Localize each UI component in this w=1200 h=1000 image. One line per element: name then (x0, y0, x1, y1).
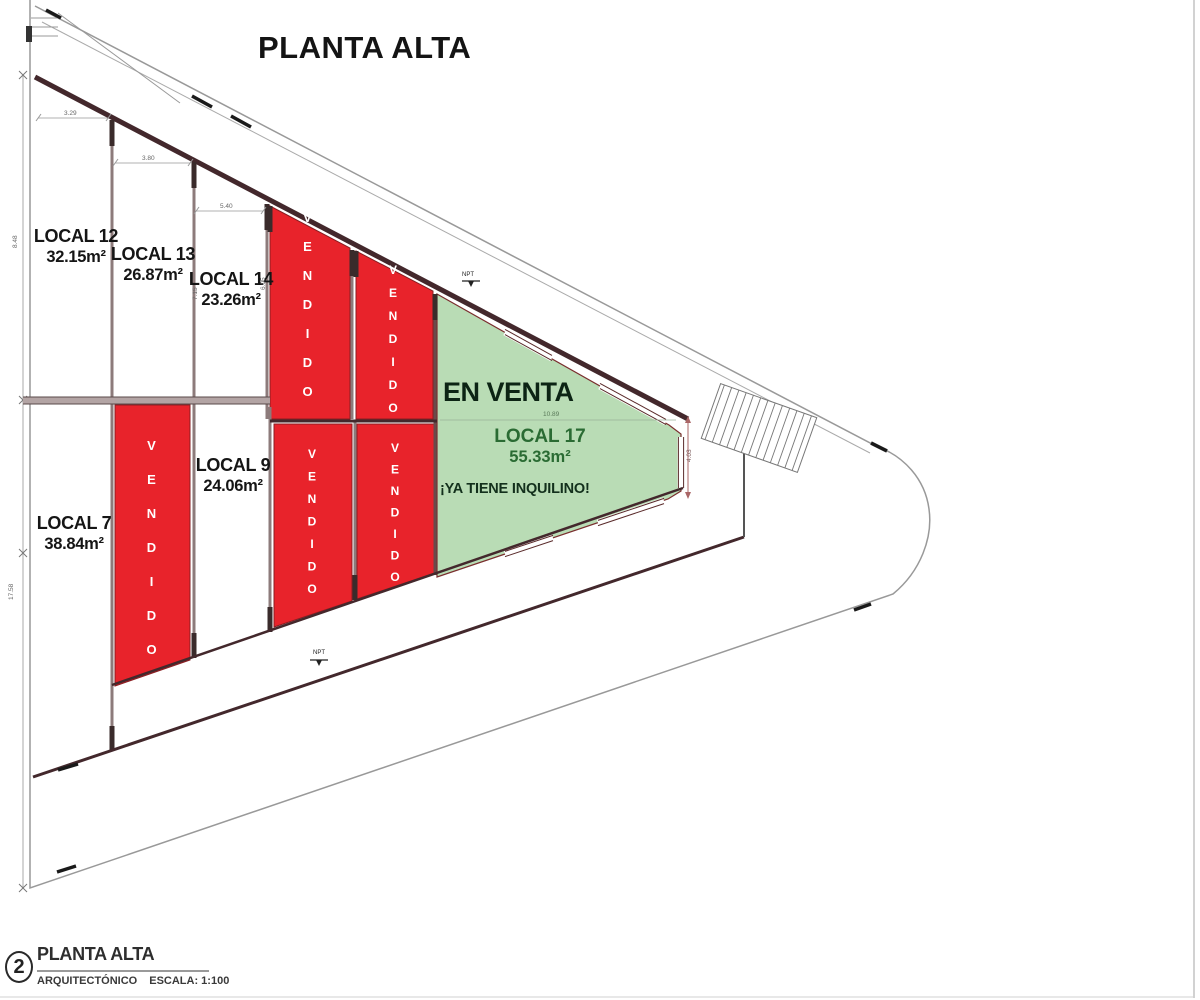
unit-area-local17: 55.33m² (455, 448, 625, 467)
dim-local17-height: 4.03 (686, 449, 693, 462)
dim-local17-width: 10.89 (543, 411, 559, 418)
dim-local13-depth: 7.15 (192, 287, 199, 300)
unit-label-local9: LOCAL 9 24.06m² (177, 455, 289, 497)
dim-local12-front: 3.29 (64, 110, 77, 117)
dim-local14-front: 5.40 (220, 203, 233, 210)
dim-local14-depth: 6.05 (260, 277, 267, 290)
level-marker-label-2: NPT (313, 650, 325, 656)
unit-name: LOCAL 7 (18, 513, 130, 534)
unit-name: LOCAL 9 (177, 455, 289, 476)
sold-banner-1: VENDIDO (300, 210, 315, 413)
floor-plan-canvas: PLANTA ALTA LOCAL 12 32.15m² LOCAL 13 26… (0, 0, 1200, 1000)
unit-label-local7: LOCAL 7 38.84m² (18, 513, 130, 555)
unit-name: LOCAL 13 (97, 244, 209, 265)
page-title: PLANTA ALTA (258, 30, 471, 66)
title-block: 2 PLANTA ALTA ARQUITECTÓNICOESCALA: 1:10… (0, 940, 420, 1000)
entry-steps (31, 13, 180, 103)
title-block-subtitle: ARQUITECTÓNICOESCALA: 1:100 (37, 975, 229, 987)
dim-left-lower: 17.58 (8, 584, 15, 600)
unit-name-local17: LOCAL 17 (455, 426, 625, 448)
sold-banner-2: VENDIDO (386, 263, 400, 424)
sheet-name: PLANTA ALTA (37, 944, 154, 965)
sheet-number-badge: 2 (5, 951, 33, 983)
title-block-rule (37, 970, 209, 972)
sold-banner-4: VENDIDO (305, 447, 319, 605)
level-marker-label-1: NPT (462, 272, 474, 278)
sold-banner-3: VENDIDO (144, 438, 159, 676)
unit-area: 38.84m² (18, 534, 130, 555)
scale-label: ESCALA: 1:100 (149, 975, 229, 987)
unit-area: 24.06m² (177, 476, 289, 497)
stairs (701, 384, 817, 473)
discipline-label: ARQUITECTÓNICO (37, 975, 137, 987)
dim-left-upper: 8.48 (12, 235, 19, 248)
unit-front-dimensions (36, 114, 266, 214)
wall-post (26, 26, 32, 42)
unit-note-local17: ¡YA TIENE INQUILINO! (440, 481, 590, 497)
floor-plan-drawing (0, 0, 1200, 1000)
for-sale-banner: EN VENTA (443, 377, 574, 408)
left-dimension-line (19, 71, 27, 892)
dim-local13-front: 3.80 (142, 155, 155, 162)
sold-banner-5: VENDIDO (388, 441, 402, 592)
